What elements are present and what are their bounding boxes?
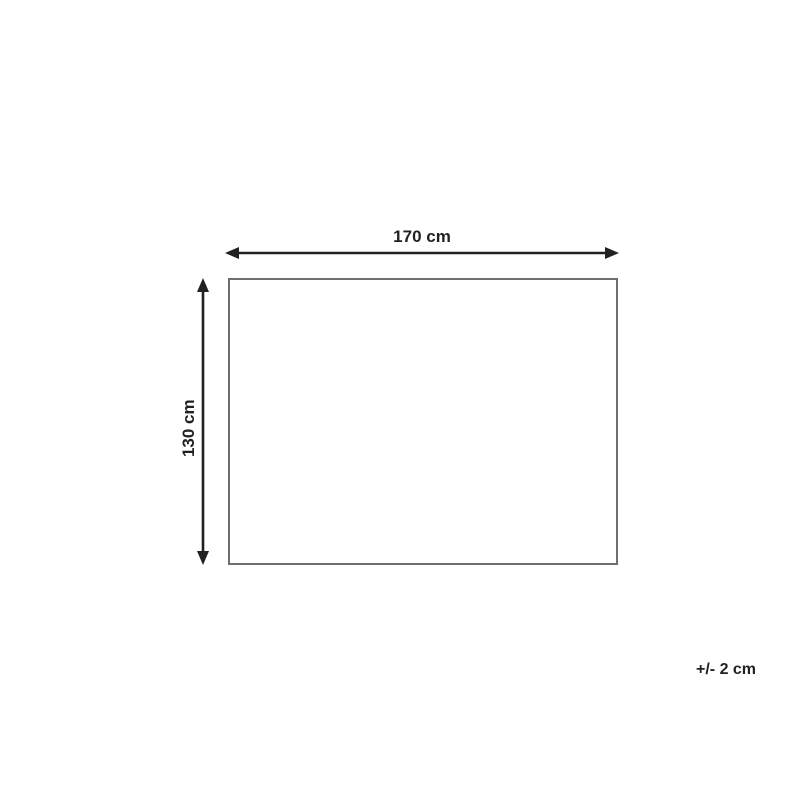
width-dimension-label: 170 cm (225, 227, 619, 247)
product-outline-rectangle (228, 278, 618, 565)
height-dimension-label: 130 cm (179, 378, 199, 478)
dimension-diagram: 170 cm 130 cm +/- 2 cm (0, 0, 800, 800)
tolerance-label: +/- 2 cm (696, 660, 756, 679)
horizontal-dimension-arrow-icon (225, 246, 619, 260)
